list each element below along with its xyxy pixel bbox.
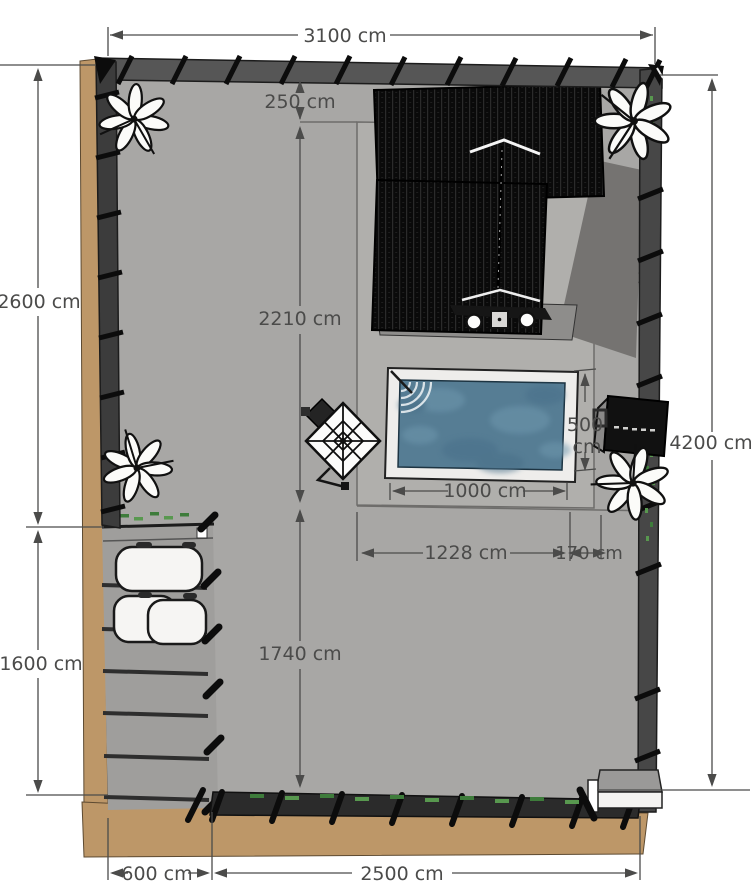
dim-label-top-width: 3100 cm (303, 25, 386, 47)
dim-label-driveway-width: 600 cm (121, 863, 192, 885)
dim-label-bottom-span: 2500 cm (360, 863, 443, 885)
dim-label-pool-length: 1000 cm (443, 480, 526, 502)
swimming-pool (385, 368, 578, 482)
dim-label-terrace-span: 1228 cm (424, 542, 507, 564)
dim-label-center-lower: 1740 cm (258, 643, 341, 665)
dim-label-side-gap: 170 cm (555, 543, 623, 564)
equipment-box (594, 396, 668, 456)
dim-label-roof-offset: 250 cm (264, 91, 335, 113)
dim-label-center-upper: 2210 cm (258, 308, 341, 330)
porch-light-icon (520, 313, 535, 328)
dim-label-left-lower: 1600 cm (0, 653, 83, 675)
dim-label-right-height: 4200 cm (669, 432, 751, 454)
plan-drawing: 250 cm (0, 0, 751, 891)
porch-light-icon (467, 315, 482, 330)
dim-label-pool-width-value: 500 (567, 414, 603, 436)
dim-label-left-upper: 2600 cm (0, 291, 81, 313)
garden-plan-canvas: 250 cm (0, 0, 751, 891)
driveway (102, 512, 221, 812)
dim-label-pool-width-unit: cm (573, 436, 602, 458)
